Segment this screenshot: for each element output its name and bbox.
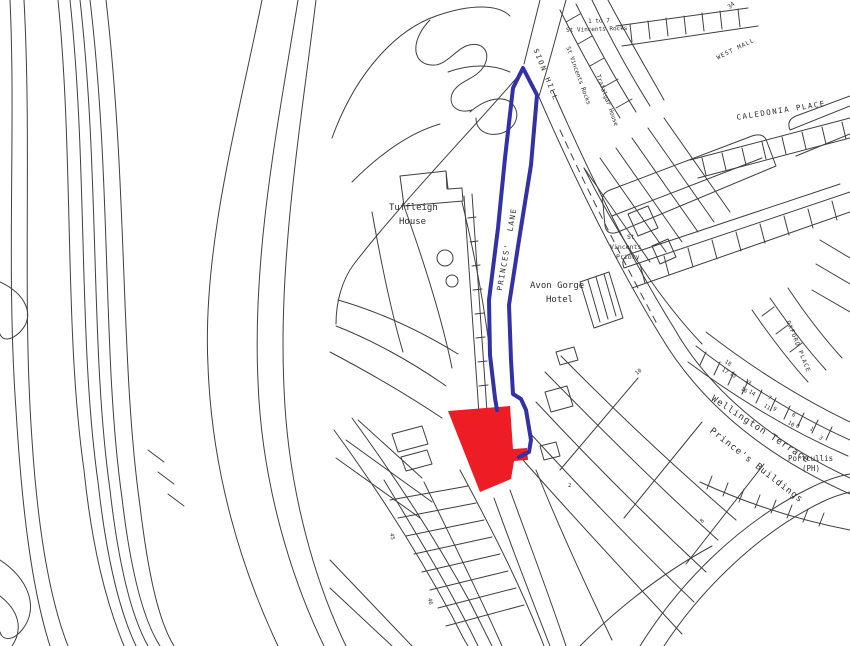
- map-canvas: [0, 0, 850, 646]
- site-area-highlight: [448, 406, 528, 492]
- map-viewport: 341 to 7St Vincents RocksSION HILLSt Vin…: [0, 0, 850, 646]
- map-linework: [0, 0, 850, 646]
